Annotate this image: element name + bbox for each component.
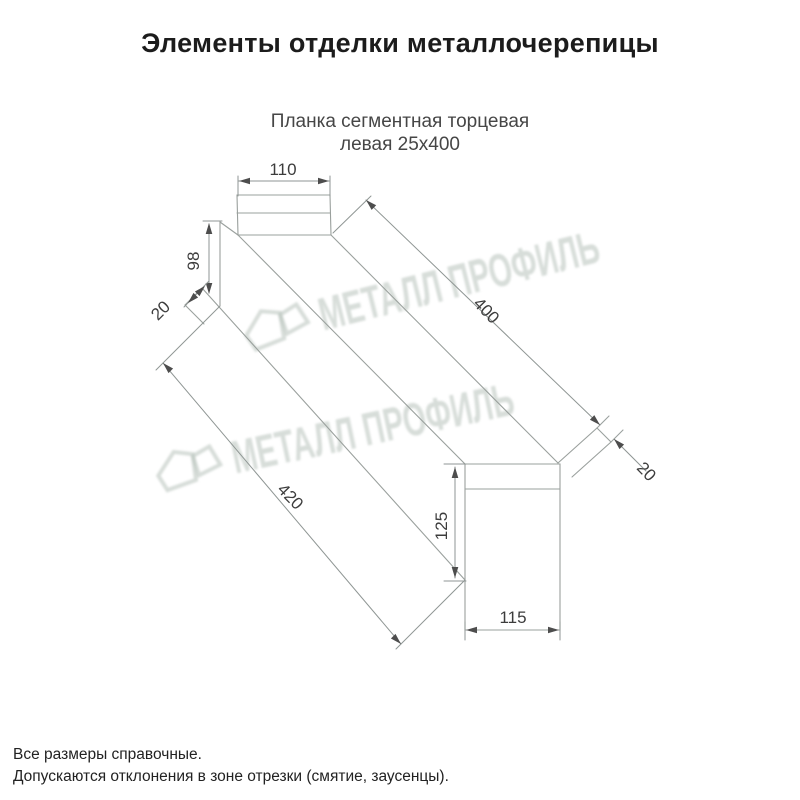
dim-110-label: 110 [269, 160, 296, 180]
dim-98 [203, 221, 222, 294]
dim-20-left [184, 281, 209, 307]
strip-long-edges [202, 235, 558, 580]
dim-400 [333, 196, 600, 425]
dim-125-label: 125 [432, 512, 452, 540]
dim-98-label: 98 [184, 252, 204, 271]
top-cap-end-view [237, 195, 331, 235]
flange-end-view [465, 464, 560, 630]
footnote-line2: Допускаются отклонения в зоне отрезки (с… [13, 768, 449, 786]
catalog-page: МЕТАЛЛ ПРОФИЛЬ МЕТАЛЛ ПРОФИЛЬ Элементы о… [0, 0, 800, 800]
dim-420 [156, 306, 465, 649]
left-end-edges [220, 222, 238, 306]
dim-115-label: 115 [499, 608, 526, 628]
right-end-fold [558, 416, 623, 477]
technical-drawing [0, 0, 800, 800]
footnote-line1: Все размеры справочные. [13, 746, 202, 764]
left-hem-fold [185, 288, 204, 324]
